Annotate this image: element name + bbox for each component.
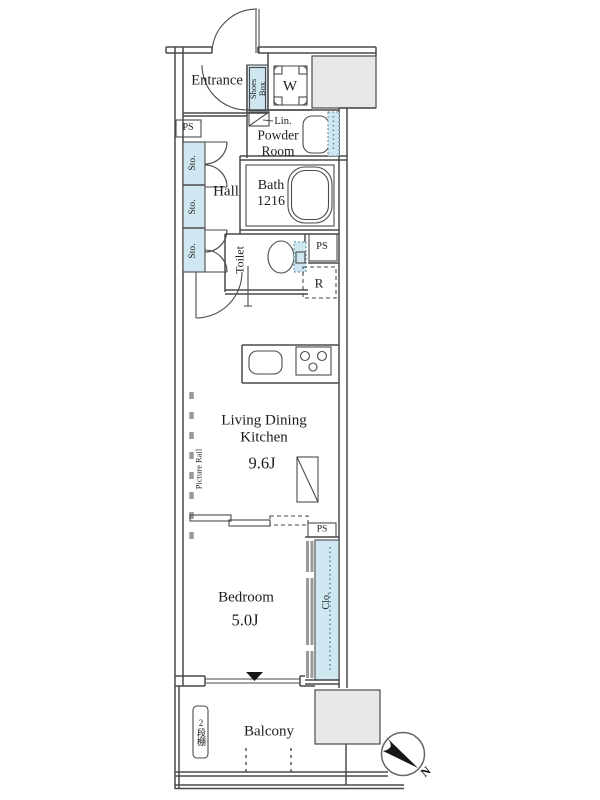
compass-needle [383,735,418,768]
floor-plan: Entrance Shoes Box W Lin. Powder Room PS… [0,0,600,800]
balcony-shelf-label: 2段棚 [196,718,205,746]
hall-entrance-wall [183,113,247,116]
linen-shelf [249,112,273,126]
toilet-label: Toilet [234,246,247,274]
window-marker-triangle [246,672,263,681]
ldk-label: Living Dining Kitchen [221,413,306,448]
shaded-column-bottom [315,690,380,744]
kitchen-counter [242,345,339,383]
bedroom-window [175,672,315,686]
sink [249,351,282,374]
entrance-label: Entrance [191,73,243,90]
pipe-space-label-bedroom: PS [317,524,328,535]
shaded-column-top [312,56,376,108]
storage-label-2: Sto. [189,199,199,214]
ldk-size-label: 9.6J [248,453,275,472]
picture-rail-label: Picture Rail [195,449,204,489]
washbasin [303,112,339,156]
balcony-label: Balcony [244,723,294,740]
bedroom-size-label: 5.0J [231,610,258,629]
toilet-fixture [268,241,294,273]
storage-label-3: Sto. [189,243,199,258]
bath-label: Bath 1216 [257,178,285,210]
linen-label: Lin. [274,116,291,128]
closet-label: Clo. [322,593,333,610]
pipe-space-label-toilet: PS [316,241,328,253]
entrance-door [212,9,259,53]
shoes-box-label: Shoes Box [249,79,267,99]
ldk-door-panel [297,457,318,502]
hall-door-arc [196,272,242,318]
powder-room-label: Powder Room [257,127,298,158]
sliding-partition [190,515,308,526]
closet [304,540,339,684]
washing-machine-label: W [283,78,297,95]
floor-plan-linework [0,0,600,800]
storage-door-arcs [205,142,227,272]
hall-label: Hall [213,183,239,200]
storage-label-1: Sto. [189,155,199,170]
refrigerator-label: R [315,275,324,290]
bedroom-label: Bedroom [218,589,274,606]
pipe-space-label-left: PS [182,122,193,134]
stove [296,347,331,375]
